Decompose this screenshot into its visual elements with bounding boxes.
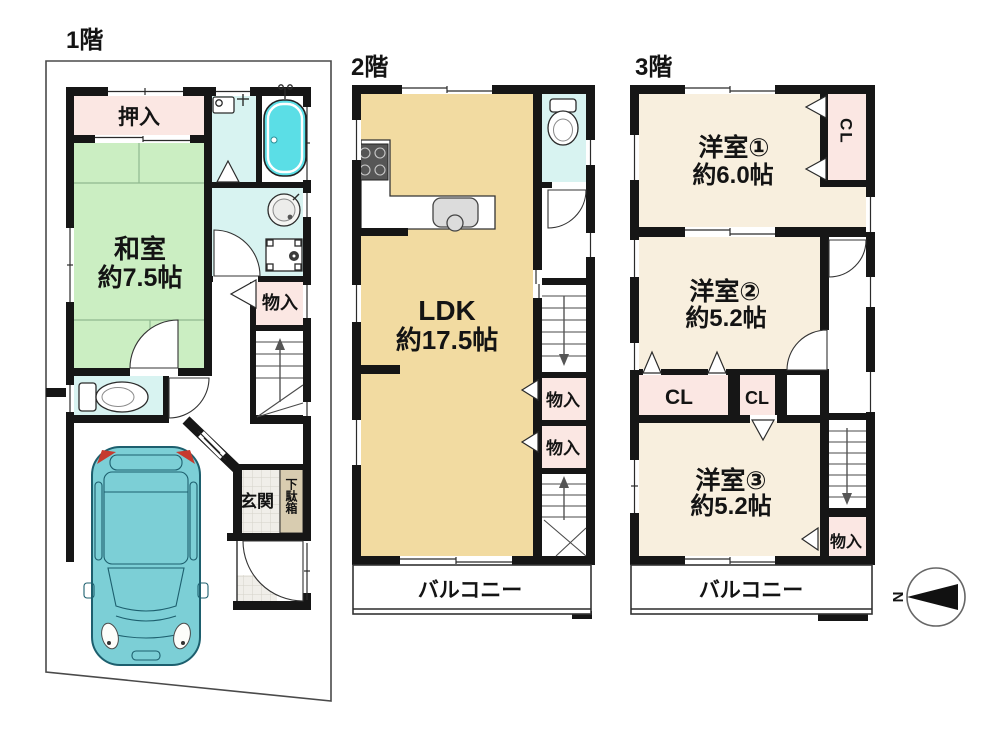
toilet-icon-f2: [548, 99, 578, 145]
yoshitsu2-size-label: 約5.2帖: [685, 304, 766, 332]
monoire-f1-label: 物入: [262, 292, 298, 313]
monoire-f2-lower-label: 物入: [546, 438, 580, 458]
washitsu-size-label: 約7.5帖: [98, 263, 183, 292]
floor2-title: 2階: [351, 54, 388, 81]
yoshitsu1-label: 洋室①: [698, 133, 769, 162]
compass-north-label: N: [890, 592, 907, 603]
washing-machine-icon: [213, 97, 234, 113]
kitchen-sink-icon: [433, 198, 478, 231]
ldk-label: LDK: [418, 295, 476, 326]
floor2-stairs-lower: [542, 476, 586, 556]
yoshitsu1-size-label: 約6.0帖: [692, 161, 773, 189]
compass: N: [890, 568, 965, 626]
floor1-plan: 1階: [46, 27, 331, 701]
car-icon: [84, 447, 208, 665]
floor1-title: 1階: [66, 27, 103, 54]
cl-left-label: CL: [665, 386, 693, 409]
floor3-title: 3階: [635, 54, 672, 81]
compass-needle: [907, 584, 958, 610]
ldk-size-label: 約17.5帖: [396, 325, 499, 355]
floor-plan-canvas: 1階: [0, 0, 1000, 737]
floor2-balcony: バルコニー: [353, 565, 591, 614]
washitsu-label: 和室: [114, 234, 166, 264]
cl-top-label: CL: [837, 118, 856, 145]
oshiire-label: 押入: [118, 105, 160, 129]
monoire-f2-upper-label: 物入: [546, 390, 580, 410]
toilet-icon-f1: [79, 382, 148, 412]
toilet-f2-door-arc: [548, 190, 586, 228]
floor3-balcony: バルコニー: [631, 565, 872, 614]
floor2-stairs-upper: [542, 296, 586, 366]
cl-right-label: CL: [745, 388, 769, 408]
room-yoshitsu1-ext: [820, 187, 866, 227]
yoshitsu2-label: 洋室②: [689, 277, 760, 306]
yoshitsu3-size-label: 約5.2帖: [690, 492, 771, 520]
floor2-balcony-label: バルコニー: [418, 579, 523, 602]
getabako-label: 下駄箱: [284, 478, 298, 515]
floor3-balcony-label: バルコニー: [699, 579, 804, 602]
monoire-f3-label: 物入: [830, 532, 862, 551]
floor2-plan: 2階: [351, 54, 595, 619]
wash-basin-icon: [268, 194, 300, 226]
floor3-plan: 3階: [630, 54, 875, 621]
water-heater-icon: [266, 239, 302, 271]
yoshitsu3-label: 洋室③: [695, 466, 766, 495]
genkan-label: 玄関: [240, 491, 274, 511]
floor3-stairs: [829, 428, 866, 505]
